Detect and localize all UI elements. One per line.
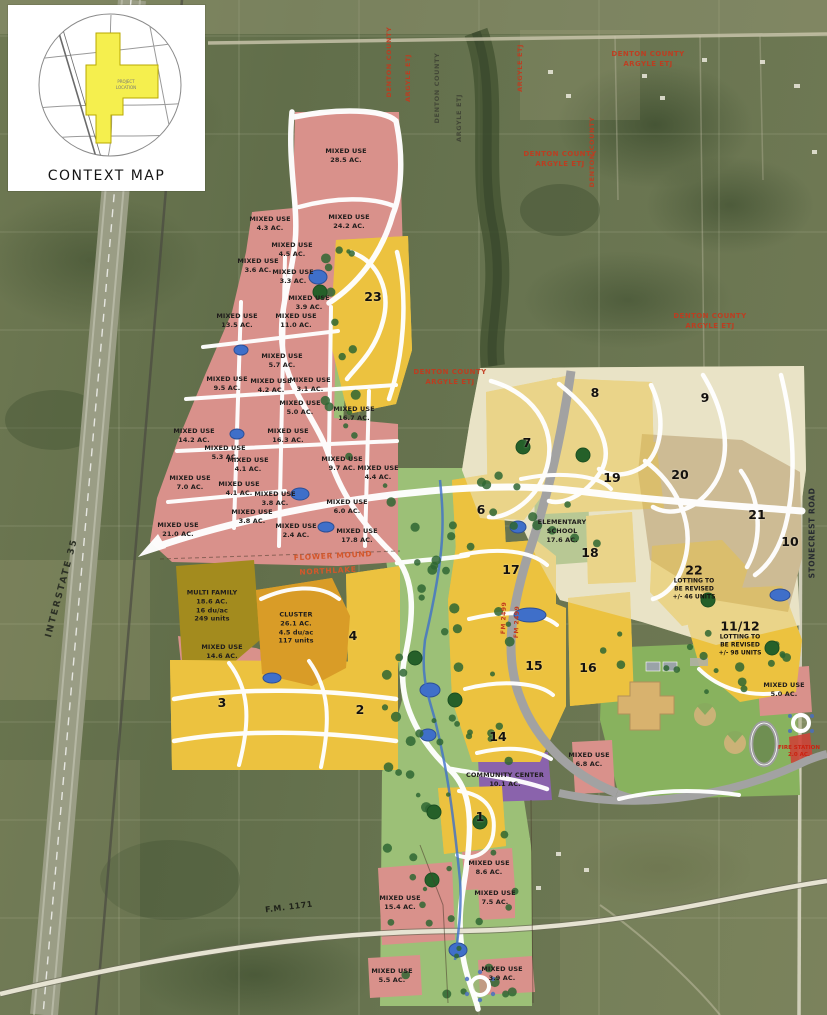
phase-22-note: 22 LOTTING TOBE REVISED +/- 46 UNITS bbox=[673, 562, 716, 601]
phase-number-3: 3 bbox=[218, 697, 227, 710]
mixed-use-parcel-label: MIXED USE5.5 AC. bbox=[371, 967, 412, 985]
mixed-use-parcel-label: MIXED USE11.0 AC. bbox=[275, 312, 316, 330]
phase-number-19: 19 bbox=[603, 472, 620, 485]
mixed-use-parcel-label: MIXED USE7.0 AC. bbox=[169, 474, 210, 492]
jurisdiction-label-vertical: ARGYLE ETJ bbox=[517, 44, 524, 92]
jurisdiction-label-vertical: DENTON COUNTY bbox=[386, 27, 393, 98]
mixed-use-parcel-label: MIXED USE3.8 AC. bbox=[254, 490, 295, 508]
mixed-use-parcel-label: MIXED USE2.4 AC. bbox=[275, 522, 316, 540]
mixed-use-parcel-label: MIXED USE16.3 AC. bbox=[267, 427, 308, 445]
mixed-use-parcel-label: MIXED USE3.3 AC. bbox=[272, 268, 313, 286]
mixed-use-parcel-label: MIXED USE5.7 AC. bbox=[261, 352, 302, 370]
mixed-use-parcel-label: MIXED USE14.2 AC. bbox=[173, 427, 214, 445]
jurisdiction-label: DENTON COUNTYARGYLE ETJ bbox=[523, 150, 596, 170]
mixed-use-parcel-label: MIXED USE13.5 AC. bbox=[216, 312, 257, 330]
mixed-use-parcel-label: MIXED USE17.8 AC. bbox=[336, 527, 377, 545]
phase-number-8: 8 bbox=[591, 387, 600, 400]
mixed-use-parcel-label: MIXED USE5.0 AC. bbox=[763, 681, 804, 699]
mixed-use-parcel-label: MIXED USE3.9 AC. bbox=[288, 294, 329, 312]
mixed-use-parcel-label: MIXED USE24.2 AC. bbox=[328, 213, 369, 231]
project-location-label: PROJECT LOCATION bbox=[116, 79, 136, 91]
mixed-use-parcel-label: MIXED USE28.5 AC. bbox=[325, 147, 366, 165]
phase-number-17: 17 bbox=[502, 564, 519, 577]
jurisdiction-label: DENTON COUNTYARGYLE ETJ bbox=[673, 312, 746, 332]
phase-number-1: 1 bbox=[476, 811, 485, 824]
mixed-use-parcel-label: MIXED USE4.1 AC. bbox=[227, 456, 268, 474]
mixed-use-parcel-label: MIXED USE8.6 AC. bbox=[468, 859, 509, 877]
context-map-inset: PROJECT LOCATION CONTEXT MAP bbox=[8, 5, 205, 191]
phase-number-23: 23 bbox=[364, 291, 381, 304]
road-label-fm-2499: FM 2499 bbox=[513, 606, 521, 639]
context-map-title: CONTEXT MAP bbox=[8, 169, 205, 183]
mixed-use-parcel-label: MIXED USE6.0 AC. bbox=[326, 498, 367, 516]
phase-number-6: 6 bbox=[477, 504, 486, 517]
mixed-use-parcel-label: MIXED USE16.7 AC. bbox=[333, 405, 374, 423]
phase-number-2: 2 bbox=[356, 704, 365, 717]
mixed-use-parcel-label: MIXED USE4.3 AC. bbox=[249, 215, 290, 233]
master-plan-map: PROJECT LOCATION CONTEXT MAP MIXED USE28… bbox=[0, 0, 827, 1015]
mixed-use-parcel-label: MIXED USE3.1 AC. bbox=[289, 376, 330, 394]
mixed-use-parcel-label: MIXED USE5.0 AC. bbox=[279, 399, 320, 417]
phase-number-14: 14 bbox=[489, 731, 506, 744]
jurisdiction-label: DENTON COUNTYARGYLE ETJ bbox=[611, 50, 684, 70]
elementary-school-label: ELEMENTARYSCHOOL 17.6 AC. bbox=[538, 518, 587, 544]
mixed-use-parcel-label: MIXED USE7.5 AC. bbox=[474, 889, 515, 907]
mixed-use-parcel-label: MIXED USE4.2 AC. bbox=[250, 377, 291, 395]
jurisdiction-label-vertical: DENTON COUNTY bbox=[589, 117, 596, 188]
phase-11-12-note: 11/12 LOTTING TOBE REVISED +/- 98 UNITS bbox=[719, 618, 762, 657]
mixed-use-parcel-label: MIXED USE9.5 AC. bbox=[206, 375, 247, 393]
phase-number-15: 15 bbox=[525, 660, 542, 673]
mixed-use-parcel-label: MIXED USE14.6 AC. bbox=[201, 643, 242, 661]
phase-number-18: 18 bbox=[581, 547, 598, 560]
mixed-use-parcel-label: MIXED USE3.9 AC. bbox=[481, 965, 522, 983]
road-label-fm-2499: FM 2499 bbox=[500, 602, 508, 635]
phase-number-16: 16 bbox=[579, 662, 596, 675]
cluster-parcel-label: CLUSTER26.1 AC. 4.5 du/ac117 units bbox=[278, 610, 313, 645]
phase-number-21: 21 bbox=[748, 509, 765, 522]
phase-number-10: 10 bbox=[781, 536, 798, 549]
context-map-graphic bbox=[8, 5, 205, 163]
phase-number-9: 9 bbox=[701, 392, 710, 405]
mixed-use-parcel-label: MIXED USE4.4 AC. bbox=[357, 464, 398, 482]
community-center-label: COMMUNITY CENTER10.1 AC. bbox=[466, 771, 544, 789]
phase-number-7: 7 bbox=[523, 437, 532, 450]
jurisdiction-label-vertical: ARGYLE ETJ bbox=[456, 94, 463, 142]
fire-station-label: FIRE STATION2.0 AC. bbox=[778, 745, 820, 759]
phase-number-4: 4 bbox=[349, 630, 358, 643]
multi-family-parcel-label: MULTI FAMILY18.6 AC. 16 du/ac249 units bbox=[187, 588, 238, 623]
mixed-use-parcel-label: MIXED USE21.0 AC. bbox=[157, 521, 198, 539]
road-label-stonecrest: STONECREST ROAD bbox=[808, 488, 817, 579]
jurisdiction-label-vertical: ARGYLE ETJ bbox=[405, 54, 412, 102]
mixed-use-parcel-label: MIXED USE4.5 AC. bbox=[271, 241, 312, 259]
jurisdiction-label-vertical: DENTON COUNTY bbox=[434, 53, 441, 124]
mixed-use-parcel-label: MIXED USE3.8 AC. bbox=[231, 508, 272, 526]
jurisdiction-label: DENTON COUNTYARGYLE ETJ bbox=[413, 368, 486, 388]
mixed-use-parcel-label: MIXED USE15.4 AC. bbox=[379, 894, 420, 912]
phase-number-20: 20 bbox=[671, 469, 688, 482]
mixed-use-parcel-label: MIXED USE6.8 AC. bbox=[568, 751, 609, 769]
